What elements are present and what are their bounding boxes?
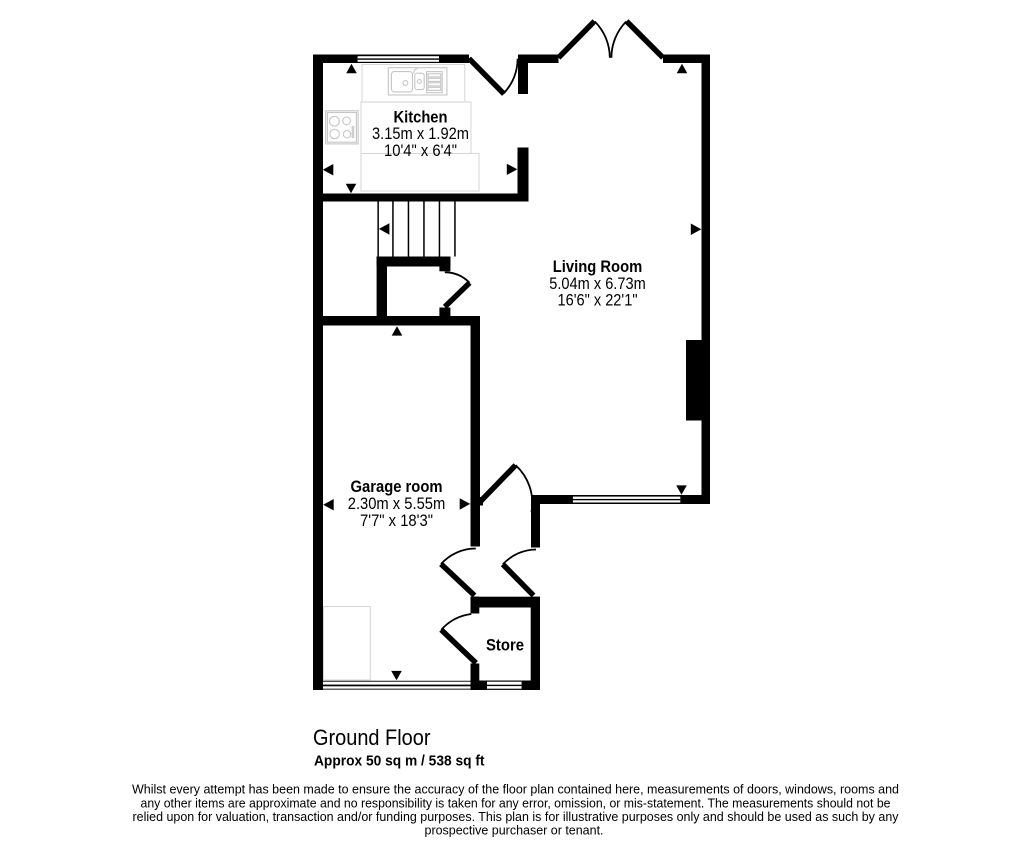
svg-text:16'6" x 22'1": 16'6" x 22'1" [558,291,638,310]
svg-text:Whilst every attempt has been: Whilst every attempt has been made to en… [132,781,899,796]
svg-text:10'4" x 6'4": 10'4" x 6'4" [384,141,457,160]
svg-text:Ground Floor: Ground Floor [313,725,431,750]
svg-text:Approx 50 sq m / 538 sq ft: Approx 50 sq m / 538 sq ft [314,754,485,770]
svg-text:any other items are approximat: any other items are approximate and no r… [141,795,891,810]
svg-text:Store: Store [486,635,524,654]
svg-text:7'7" x 18'3": 7'7" x 18'3" [360,511,433,530]
svg-text:prospective purchaser or tenan: prospective purchaser or tenant. [425,823,604,838]
